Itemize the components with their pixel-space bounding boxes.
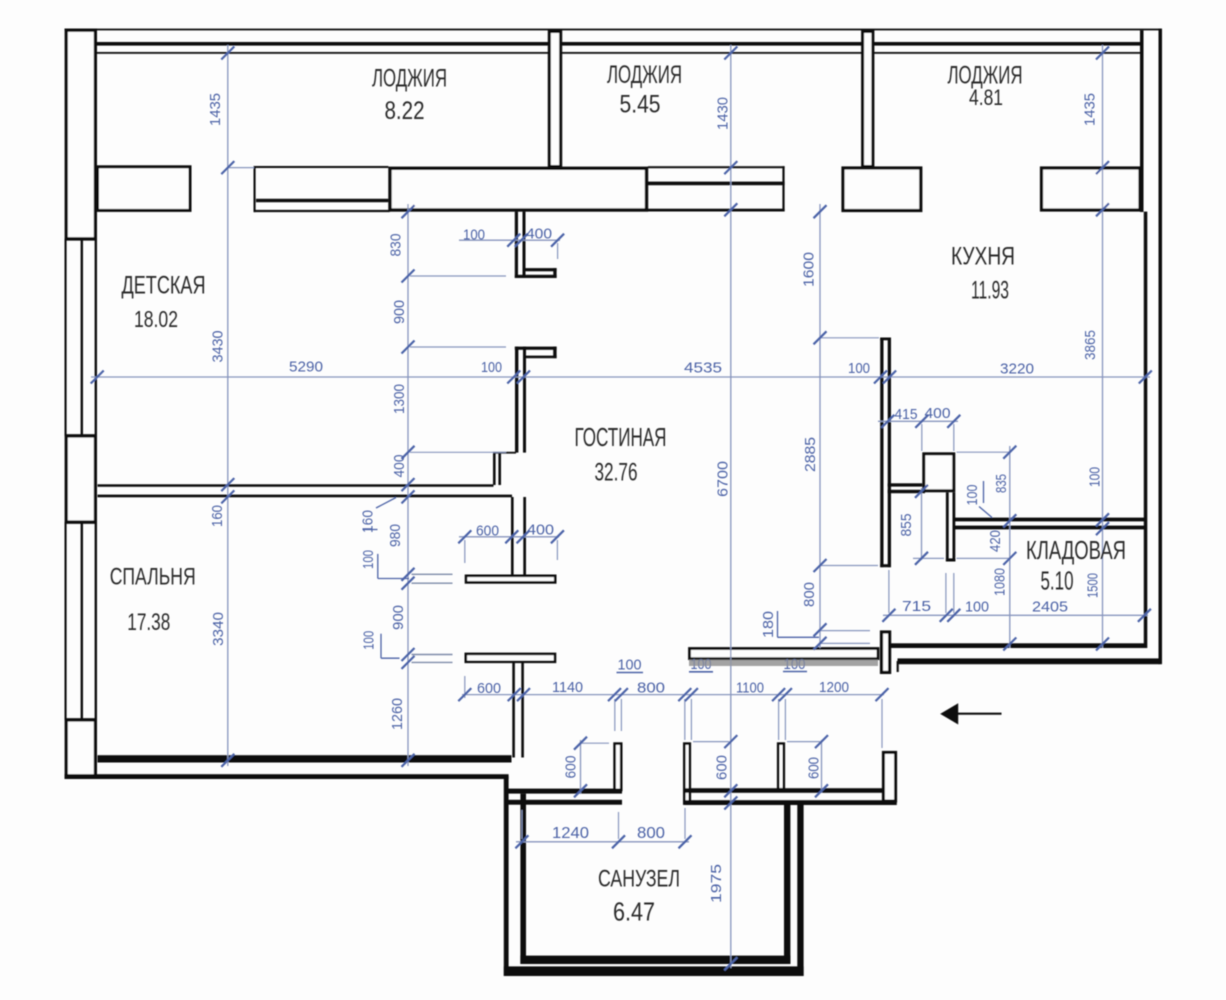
svg-text:715: 715 — [902, 598, 931, 615]
svg-text:5.10: 5.10 — [1041, 568, 1074, 596]
svg-text:600: 600 — [714, 755, 731, 780]
svg-text:400: 400 — [527, 522, 554, 539]
svg-text:800: 800 — [637, 680, 665, 697]
svg-text:17.38: 17.38 — [127, 609, 170, 636]
svg-text:3865: 3865 — [1082, 330, 1099, 360]
svg-text:ЛОДЖИЯ: ЛОДЖИЯ — [372, 65, 447, 92]
svg-text:6700: 6700 — [715, 461, 732, 497]
svg-text:6.47: 6.47 — [613, 899, 655, 927]
svg-text:32.76: 32.76 — [595, 460, 638, 487]
svg-text:КЛАДОВАЯ: КЛАДОВАЯ — [1026, 537, 1126, 565]
svg-text:800: 800 — [801, 582, 818, 607]
svg-text:КУХНЯ: КУХНЯ — [951, 243, 1015, 271]
svg-text:100: 100 — [848, 360, 870, 377]
svg-text:8.22: 8.22 — [385, 97, 425, 125]
svg-text:2405: 2405 — [1032, 599, 1068, 616]
svg-text:900: 900 — [391, 300, 408, 324]
svg-text:600: 600 — [806, 757, 823, 779]
svg-text:1260: 1260 — [389, 698, 406, 730]
svg-text:400: 400 — [925, 405, 951, 422]
svg-text:1430: 1430 — [715, 97, 732, 130]
svg-text:5290: 5290 — [289, 359, 323, 376]
svg-text:1200: 1200 — [819, 679, 849, 696]
svg-text:400: 400 — [526, 226, 552, 243]
svg-text:1140: 1140 — [552, 679, 583, 696]
svg-text:800: 800 — [637, 825, 665, 842]
svg-text:100: 100 — [481, 359, 502, 376]
svg-text:1300: 1300 — [391, 384, 408, 414]
svg-text:1975: 1975 — [708, 864, 725, 903]
svg-text:100: 100 — [360, 550, 377, 569]
svg-text:980: 980 — [387, 524, 404, 547]
svg-text:1600: 1600 — [801, 252, 818, 287]
svg-text:3430: 3430 — [210, 331, 227, 363]
svg-text:1435: 1435 — [207, 93, 224, 126]
svg-text:1435: 1435 — [1082, 93, 1099, 126]
svg-text:100: 100 — [361, 631, 378, 650]
svg-text:5.45: 5.45 — [620, 91, 661, 119]
svg-text:415: 415 — [895, 406, 918, 423]
svg-text:100: 100 — [964, 485, 981, 506]
svg-text:3340: 3340 — [210, 612, 227, 646]
svg-text:160: 160 — [209, 505, 226, 527]
svg-text:400: 400 — [391, 455, 408, 478]
svg-text:900: 900 — [390, 605, 407, 630]
svg-text:600: 600 — [476, 523, 499, 540]
svg-text:600: 600 — [477, 680, 501, 697]
svg-text:100: 100 — [1087, 467, 1104, 487]
svg-text:1100: 1100 — [736, 680, 764, 697]
svg-text:3220: 3220 — [1000, 361, 1034, 378]
svg-text:100: 100 — [965, 599, 989, 616]
svg-text:1080: 1080 — [992, 568, 1009, 596]
svg-text:11.93: 11.93 — [971, 278, 1009, 305]
svg-text:100: 100 — [618, 657, 642, 674]
svg-text:100: 100 — [463, 227, 485, 244]
svg-text:420: 420 — [987, 530, 1004, 552]
svg-text:СПАЛЬНЯ: СПАЛЬНЯ — [110, 564, 196, 591]
svg-text:4535: 4535 — [684, 360, 722, 377]
svg-text:1500: 1500 — [1085, 573, 1102, 598]
svg-text:855: 855 — [898, 514, 915, 537]
svg-text:180: 180 — [760, 611, 777, 638]
svg-text:ЛОДЖИЯ: ЛОДЖИЯ — [607, 62, 682, 89]
svg-text:1240: 1240 — [552, 825, 589, 842]
svg-text:835: 835 — [993, 474, 1010, 493]
svg-text:18.02: 18.02 — [134, 306, 178, 332]
svg-text:2885: 2885 — [802, 437, 819, 472]
svg-text:САНУЗЕЛ: САНУЗЕЛ — [598, 866, 680, 893]
svg-text:830: 830 — [388, 234, 405, 257]
svg-text:ГОСТИНАЯ: ГОСТИНАЯ — [575, 424, 667, 452]
svg-text:4.81: 4.81 — [969, 85, 1003, 110]
svg-text:600: 600 — [563, 756, 580, 779]
svg-text:ДЕТСКАЯ: ДЕТСКАЯ — [122, 273, 206, 300]
